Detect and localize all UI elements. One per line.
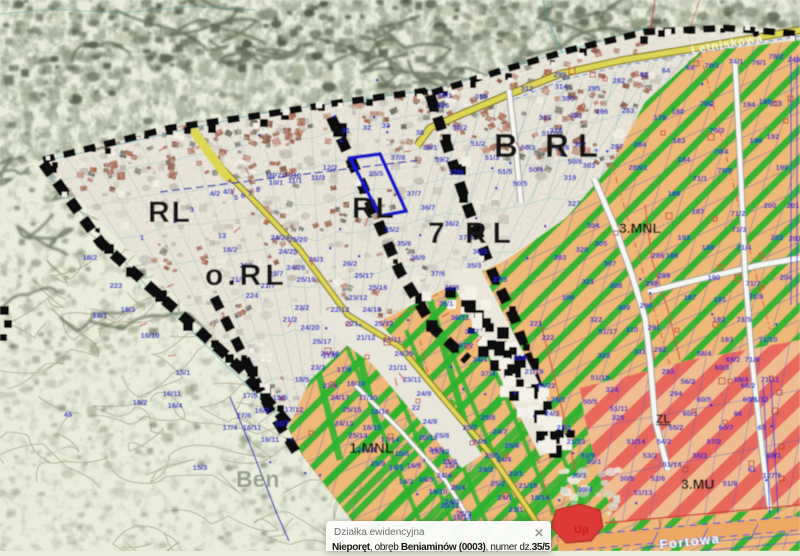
svg-text:300: 300 — [562, 94, 575, 103]
svg-text:326: 326 — [437, 101, 450, 110]
svg-text:315: 315 — [475, 92, 488, 101]
svg-text:188: 188 — [668, 189, 681, 198]
svg-text:324: 324 — [606, 385, 619, 394]
svg-text:308: 308 — [610, 281, 623, 290]
svg-text:184: 184 — [678, 155, 691, 164]
svg-text:19/1: 19/1 — [445, 461, 461, 470]
svg-text:45: 45 — [64, 410, 73, 419]
svg-text:68/2: 68/2 — [741, 381, 756, 390]
svg-text:285/1: 285/1 — [628, 163, 648, 172]
svg-text:25/4: 25/4 — [451, 483, 467, 492]
svg-text:67: 67 — [758, 423, 766, 432]
svg-text:ZL: ZL — [656, 412, 671, 426]
svg-text:4/3: 4/3 — [223, 187, 234, 196]
svg-text:38: 38 — [416, 128, 424, 137]
svg-text:293: 293 — [662, 367, 675, 376]
svg-text:287: 287 — [611, 142, 624, 151]
svg-text:31: 31 — [342, 126, 351, 135]
svg-text:24/15: 24/15 — [362, 305, 382, 314]
svg-text:192: 192 — [713, 315, 726, 324]
svg-text:284: 284 — [634, 140, 647, 149]
svg-text:o.RL: o.RL — [205, 259, 288, 292]
svg-text:20/12: 20/12 — [440, 501, 459, 510]
svg-text:305: 305 — [595, 239, 608, 248]
svg-text:22: 22 — [412, 403, 420, 412]
svg-text:17/5: 17/5 — [243, 391, 259, 400]
svg-text:21/12: 21/12 — [356, 333, 375, 342]
svg-text:190: 190 — [708, 273, 721, 282]
svg-text:18/13: 18/13 — [430, 447, 449, 456]
svg-text:MPZP 010: MPZP 010 — [266, 171, 301, 180]
svg-text:23/1: 23/1 — [509, 469, 525, 478]
svg-text:194: 194 — [743, 100, 756, 109]
svg-text:24/5: 24/5 — [473, 437, 489, 446]
svg-text:71/3: 71/3 — [732, 225, 747, 234]
svg-text:71/1: 71/1 — [693, 174, 709, 183]
svg-text:23/12: 23/12 — [348, 293, 367, 302]
svg-text:55/3: 55/3 — [693, 451, 708, 460]
svg-text:24/26: 24/26 — [286, 263, 305, 272]
svg-text:22/12: 22/12 — [330, 305, 349, 314]
svg-text:289: 289 — [658, 271, 671, 280]
svg-text:17/9: 17/9 — [337, 365, 352, 374]
svg-text:25/2: 25/2 — [491, 479, 506, 488]
svg-text:62: 62 — [640, 70, 648, 79]
svg-text:183: 183 — [673, 136, 686, 145]
svg-text:188: 188 — [666, 251, 679, 260]
svg-text:30/3: 30/3 — [572, 471, 587, 480]
svg-text:Ben: Ben — [236, 466, 279, 492]
svg-text:193: 193 — [678, 233, 691, 242]
svg-text:23/1: 23/1 — [557, 423, 573, 432]
svg-text:16/5: 16/5 — [419, 475, 435, 484]
svg-text:20/11: 20/11 — [419, 433, 438, 442]
svg-text:3.MNL: 3.MNL — [619, 220, 661, 236]
svg-text:12/2: 12/2 — [323, 163, 338, 172]
svg-text:37/8: 37/8 — [391, 153, 406, 162]
svg-text:220: 220 — [514, 353, 527, 362]
svg-text:B RL: B RL — [494, 127, 607, 164]
svg-text:71/10: 71/10 — [758, 335, 777, 344]
svg-text:24/2: 24/2 — [479, 465, 494, 474]
svg-text:17/4: 17/4 — [223, 423, 239, 432]
svg-text:320: 320 — [576, 245, 589, 254]
svg-text:35/3: 35/3 — [467, 261, 482, 270]
svg-text:24/25: 24/25 — [394, 349, 414, 358]
svg-text:283: 283 — [622, 106, 635, 115]
svg-text:191: 191 — [714, 295, 727, 304]
svg-text:24/24: 24/24 — [270, 233, 290, 242]
svg-text:15/1: 15/1 — [176, 368, 192, 377]
svg-text:70/4: 70/4 — [714, 147, 730, 156]
svg-text:213: 213 — [770, 99, 783, 108]
svg-text:17/10: 17/10 — [358, 393, 377, 402]
svg-text:17/12: 17/12 — [284, 405, 303, 414]
svg-text:30/1: 30/1 — [587, 457, 603, 466]
svg-text:18/15: 18/15 — [362, 423, 382, 432]
svg-text:24/22: 24/22 — [536, 381, 555, 390]
svg-text:71/5: 71/5 — [737, 315, 753, 324]
svg-text:180: 180 — [672, 107, 685, 116]
svg-text:16/4: 16/4 — [168, 401, 184, 410]
svg-text:24/4: 24/4 — [437, 471, 453, 480]
svg-text:193: 193 — [721, 335, 734, 344]
svg-text:69: 69 — [686, 63, 694, 72]
svg-text:35/5: 35/5 — [369, 169, 385, 178]
svg-text:71/4: 71/4 — [737, 243, 753, 252]
svg-text:18/2: 18/2 — [223, 245, 238, 254]
svg-text:8: 8 — [256, 185, 260, 194]
svg-text:298: 298 — [646, 279, 659, 288]
svg-text:25/12: 25/12 — [374, 319, 393, 328]
svg-text:18/2: 18/2 — [83, 253, 98, 262]
svg-text:66: 66 — [734, 409, 742, 418]
svg-text:301: 301 — [570, 111, 583, 120]
svg-text:60/5: 60/5 — [697, 395, 713, 404]
svg-text:71/9: 71/9 — [745, 355, 760, 364]
svg-text:19/11: 19/11 — [261, 435, 280, 444]
svg-text:310: 310 — [626, 325, 639, 334]
svg-text:299: 299 — [554, 70, 567, 79]
svg-text:23/1: 23/1 — [509, 505, 525, 514]
svg-text:327: 327 — [568, 199, 581, 208]
svg-text:286: 286 — [652, 251, 665, 260]
svg-text:24/17: 24/17 — [330, 393, 349, 402]
svg-text:16/10: 16/10 — [140, 331, 159, 340]
svg-text:21/19: 21/19 — [524, 367, 543, 376]
svg-text:54/2: 54/2 — [657, 437, 672, 446]
svg-text:308: 308 — [562, 293, 575, 302]
svg-text:37/7: 37/7 — [407, 189, 422, 198]
svg-text:24/13: 24/13 — [334, 419, 353, 428]
svg-text:50/5: 50/5 — [583, 397, 599, 406]
svg-text:23/3: 23/3 — [311, 363, 326, 372]
svg-text:16/2: 16/2 — [255, 406, 270, 415]
svg-text:187: 187 — [684, 293, 697, 302]
svg-text:60/6: 60/6 — [743, 395, 758, 404]
svg-text:187: 187 — [692, 207, 705, 216]
svg-text:223: 223 — [110, 281, 123, 290]
svg-text:1.MNL: 1.MNL — [349, 440, 394, 457]
svg-text:311: 311 — [634, 347, 647, 356]
svg-text:179: 179 — [654, 113, 667, 122]
svg-text:204: 204 — [780, 273, 793, 282]
svg-text:14/2: 14/2 — [399, 477, 414, 486]
svg-text:312: 312 — [521, 84, 534, 93]
svg-text:13: 13 — [218, 231, 226, 240]
svg-text:18/5: 18/5 — [295, 375, 311, 384]
svg-text:317: 317 — [539, 113, 552, 122]
svg-text:7 RL: 7 RL — [428, 217, 517, 250]
svg-text:57/2: 57/2 — [707, 437, 722, 446]
svg-text:37/5: 37/5 — [493, 275, 509, 284]
svg-text:319: 319 — [564, 173, 577, 182]
svg-text:60/3: 60/3 — [715, 363, 730, 372]
svg-text:11/3: 11/3 — [311, 173, 325, 182]
svg-text:71/2: 71/2 — [731, 209, 746, 218]
svg-text:18/1: 18/1 — [93, 311, 109, 320]
svg-text:202: 202 — [771, 233, 784, 242]
svg-text:30/5: 30/5 — [620, 474, 636, 483]
svg-text:58/4: 58/4 — [697, 349, 713, 358]
svg-text:25/17: 25/17 — [312, 337, 331, 346]
svg-text:24/7: 24/7 — [493, 427, 508, 436]
svg-text:19/10: 19/10 — [428, 487, 447, 496]
svg-text:15/3: 15/3 — [193, 463, 208, 472]
svg-text:291: 291 — [648, 323, 661, 332]
svg-text:14/3: 14/3 — [389, 463, 404, 472]
svg-text:18/16: 18/16 — [370, 407, 389, 416]
svg-text:RL: RL — [148, 196, 192, 229]
svg-text:51/11: 51/11 — [610, 404, 629, 413]
svg-text:39/2: 39/2 — [435, 155, 450, 164]
svg-text:16/11: 16/11 — [163, 389, 182, 398]
svg-text:50/2: 50/2 — [453, 123, 468, 132]
svg-text:51/17: 51/17 — [598, 327, 617, 336]
svg-text:25/16: 25/16 — [368, 283, 387, 292]
svg-text:35/7: 35/7 — [465, 327, 480, 336]
svg-text:26/3: 26/3 — [309, 255, 324, 264]
svg-text:26/2: 26/2 — [343, 259, 358, 268]
svg-text:24/20: 24/20 — [300, 323, 319, 332]
svg-text:51/15: 51/15 — [590, 373, 610, 382]
svg-text:36/11: 36/11 — [451, 313, 470, 322]
svg-text:51/14: 51/14 — [626, 437, 646, 446]
svg-text:314: 314 — [555, 82, 568, 91]
svg-text:35/1: 35/1 — [439, 299, 455, 308]
svg-text:30/4: 30/4 — [578, 485, 594, 494]
svg-text:323: 323 — [598, 351, 611, 360]
svg-text:309: 309 — [618, 303, 631, 312]
svg-text:50/5: 50/5 — [513, 179, 529, 188]
svg-text:64: 64 — [662, 66, 671, 75]
svg-text:25/7: 25/7 — [463, 423, 478, 432]
svg-text:24/3: 24/3 — [545, 409, 560, 418]
svg-text:6: 6 — [241, 191, 245, 200]
svg-text:15/2: 15/2 — [133, 398, 148, 407]
svg-text:25/8: 25/8 — [481, 413, 496, 422]
svg-text:192: 192 — [767, 132, 780, 141]
svg-text:51/14: 51/14 — [662, 460, 682, 469]
svg-text:25/9: 25/9 — [371, 459, 386, 468]
svg-text:294: 294 — [670, 389, 683, 398]
svg-text:303: 303 — [554, 253, 567, 262]
svg-text:18/14: 18/14 — [530, 493, 550, 502]
svg-text:304: 304 — [587, 221, 600, 230]
svg-text:68/1: 68/1 — [767, 451, 783, 460]
svg-text:51/13: 51/13 — [633, 488, 652, 497]
svg-text:70/1: 70/1 — [705, 61, 721, 70]
svg-text:76/1: 76/1 — [752, 58, 768, 67]
svg-text:325: 325 — [612, 413, 625, 422]
svg-text:36/9: 36/9 — [411, 253, 426, 262]
svg-text:221: 221 — [530, 319, 543, 328]
svg-text:18/11: 18/11 — [243, 423, 262, 432]
svg-text:37/4: 37/4 — [481, 369, 497, 378]
svg-text:34/4: 34/4 — [473, 355, 489, 364]
svg-text:24/8: 24/8 — [423, 417, 438, 426]
svg-text:17/6: 17/6 — [237, 411, 252, 420]
svg-text:74/1: 74/1 — [729, 57, 745, 66]
svg-text:35/6: 35/6 — [397, 239, 412, 248]
svg-text:Up: Up — [574, 524, 589, 536]
svg-text:222: 222 — [542, 333, 555, 342]
svg-text:282: 282 — [613, 76, 626, 85]
svg-text:16/7: 16/7 — [275, 419, 290, 428]
svg-text:51/5: 51/5 — [498, 167, 514, 176]
svg-text:21/2: 21/2 — [283, 315, 298, 324]
svg-text:24/25: 24/25 — [278, 247, 298, 256]
svg-text:24/9: 24/9 — [417, 389, 432, 398]
svg-text:55/2: 55/2 — [669, 423, 684, 432]
svg-text:189: 189 — [702, 243, 715, 252]
svg-text:290: 290 — [640, 301, 653, 310]
svg-text:32: 32 — [363, 123, 371, 132]
svg-text:203: 203 — [789, 234, 800, 243]
svg-text:37/8: 37/8 — [449, 168, 464, 177]
svg-text:248: 248 — [788, 55, 800, 64]
svg-text:4/2: 4/2 — [210, 189, 221, 198]
svg-text:200: 200 — [764, 201, 777, 210]
svg-text:322: 322 — [590, 315, 603, 324]
svg-text:25/15: 25/15 — [342, 405, 362, 414]
svg-text:70/2: 70/2 — [700, 99, 715, 108]
svg-text:23/11: 23/11 — [403, 375, 422, 384]
svg-text:15/5: 15/5 — [273, 393, 289, 402]
svg-text:25/13: 25/13 — [348, 431, 367, 440]
svg-text:7: 7 — [248, 189, 252, 198]
svg-text:16/5: 16/5 — [407, 461, 423, 470]
svg-text:51/2: 51/2 — [471, 139, 486, 148]
svg-text:296: 296 — [596, 107, 609, 116]
svg-text:36/7: 36/7 — [421, 203, 436, 212]
svg-text:56/2: 56/2 — [681, 377, 696, 386]
svg-text:18/10: 18/10 — [346, 379, 365, 388]
svg-text:RL: RL — [352, 192, 396, 225]
svg-text:25/1: 25/1 — [551, 395, 567, 404]
svg-text:50/1: 50/1 — [438, 91, 454, 100]
svg-text:78/2: 78/2 — [769, 52, 784, 61]
svg-text:25/20: 25/20 — [288, 235, 307, 244]
svg-text:51/9: 51/9 — [723, 479, 738, 488]
svg-text:37/6: 37/6 — [431, 269, 446, 278]
svg-text:23/2: 23/2 — [295, 303, 310, 312]
svg-text:50/4: 50/4 — [529, 165, 545, 174]
svg-text:201: 201 — [787, 201, 800, 210]
svg-text:25/17: 25/17 — [354, 271, 373, 280]
svg-text:25/19: 25/19 — [296, 275, 315, 284]
svg-text:35/2: 35/2 — [385, 225, 400, 234]
svg-text:221: 221 — [346, 319, 359, 328]
svg-text:196: 196 — [750, 136, 763, 145]
svg-text:39/1: 39/1 — [423, 143, 439, 152]
svg-text:71/7: 71/7 — [746, 279, 761, 288]
svg-text:21/15: 21/15 — [518, 481, 538, 490]
svg-text:21/13: 21/13 — [566, 437, 585, 446]
svg-text:36/8: 36/8 — [445, 283, 460, 292]
svg-text:70/5: 70/5 — [718, 166, 734, 175]
svg-text:53/2: 53/2 — [643, 451, 658, 460]
svg-text:321: 321 — [582, 277, 595, 286]
svg-text:15/6: 15/6 — [395, 449, 410, 458]
svg-text:3.MU: 3.MU — [681, 476, 714, 492]
svg-text:25/6: 25/6 — [505, 441, 520, 450]
svg-text:52/6: 52/6 — [651, 474, 666, 483]
svg-text:18/3: 18/3 — [121, 305, 136, 314]
svg-text:307: 307 — [604, 259, 617, 268]
svg-text:292: 292 — [654, 345, 667, 354]
svg-text:199: 199 — [776, 163, 789, 172]
svg-text:21/11: 21/11 — [389, 363, 408, 372]
svg-text:295: 295 — [588, 84, 601, 93]
svg-text:71/8: 71/8 — [749, 292, 764, 301]
svg-text:224: 224 — [246, 291, 259, 300]
